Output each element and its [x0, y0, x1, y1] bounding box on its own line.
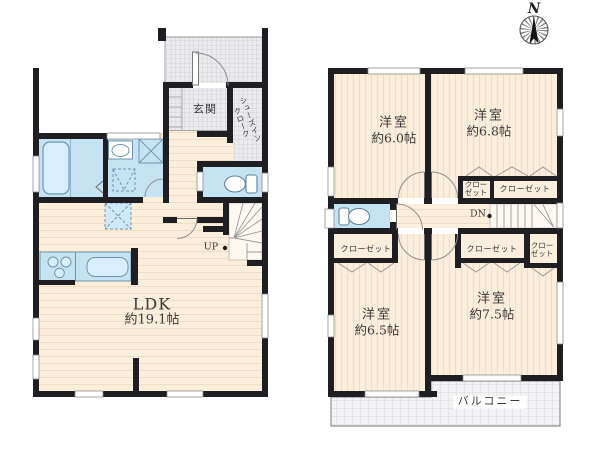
- compass-icon: N: [520, 1, 548, 44]
- room-size: 約6.0帖: [372, 131, 417, 145]
- stairs-down-start-dot: [487, 214, 491, 218]
- floorplan-canvas: N 玄関 シューズイン クローク LDK 約19.1帖 UP DN 洋室 約6.…: [0, 0, 600, 456]
- bedroom68-label: 洋室 約6.8帖: [467, 109, 512, 138]
- entrance-porch: [166, 37, 262, 83]
- closet-line2: ゼット: [465, 189, 488, 197]
- floorplan-drawing: N: [0, 0, 600, 456]
- room-name: 洋室: [467, 109, 512, 124]
- toilet1-door-gap: [197, 172, 203, 191]
- toilet1-icon: [225, 175, 258, 193]
- closet-wide-top-label: クローゼット: [500, 184, 551, 193]
- ldk-label: LDK 約19.1帖: [125, 295, 180, 328]
- room-name: 洋室: [372, 116, 417, 131]
- closet-75-label: クローゼット: [467, 244, 518, 253]
- bedroom65-label: 洋室 約6.5帖: [355, 308, 400, 337]
- toilet2-icon: [339, 208, 370, 225]
- bedroom60-label: 洋室 約6.0帖: [372, 116, 417, 145]
- vanity-sink-icon: [109, 141, 133, 159]
- kitchen-counter: [40, 252, 131, 281]
- floor1-plan: [33, 28, 268, 397]
- closet-small-top-label: クロー ゼット: [465, 181, 488, 198]
- refrigerator-space-icon: [105, 203, 131, 229]
- stairs-up-label: UP: [204, 243, 218, 254]
- stairs-up-start-dot: [223, 246, 227, 250]
- room-size: 約6.8帖: [467, 124, 512, 138]
- closet-narrow-label: クロー ゼット: [531, 242, 554, 259]
- closet-65-label: クローゼット: [341, 244, 392, 253]
- stairs1-area: [229, 203, 262, 260]
- stairs2-area: [490, 204, 557, 228]
- stairs-down-label: DN: [470, 210, 486, 221]
- room-size: 約6.5帖: [355, 323, 400, 337]
- kitchen-sink-icon: [87, 258, 128, 277]
- balcony-label: バルコニー: [454, 396, 527, 409]
- compass-north-label: N: [527, 1, 541, 17]
- ldk-name: LDK: [125, 295, 180, 313]
- ldk-size: 約19.1帖: [125, 314, 180, 329]
- bathtub-icon: [43, 139, 71, 197]
- bedroom75-label: 洋室 約7.5帖: [470, 292, 515, 321]
- entrance-label: 玄関: [193, 104, 217, 117]
- closet-line2: ゼット: [531, 250, 554, 258]
- room-name: 洋室: [470, 292, 515, 307]
- room-name: 洋室: [355, 308, 400, 323]
- room-size: 約7.5帖: [470, 307, 515, 321]
